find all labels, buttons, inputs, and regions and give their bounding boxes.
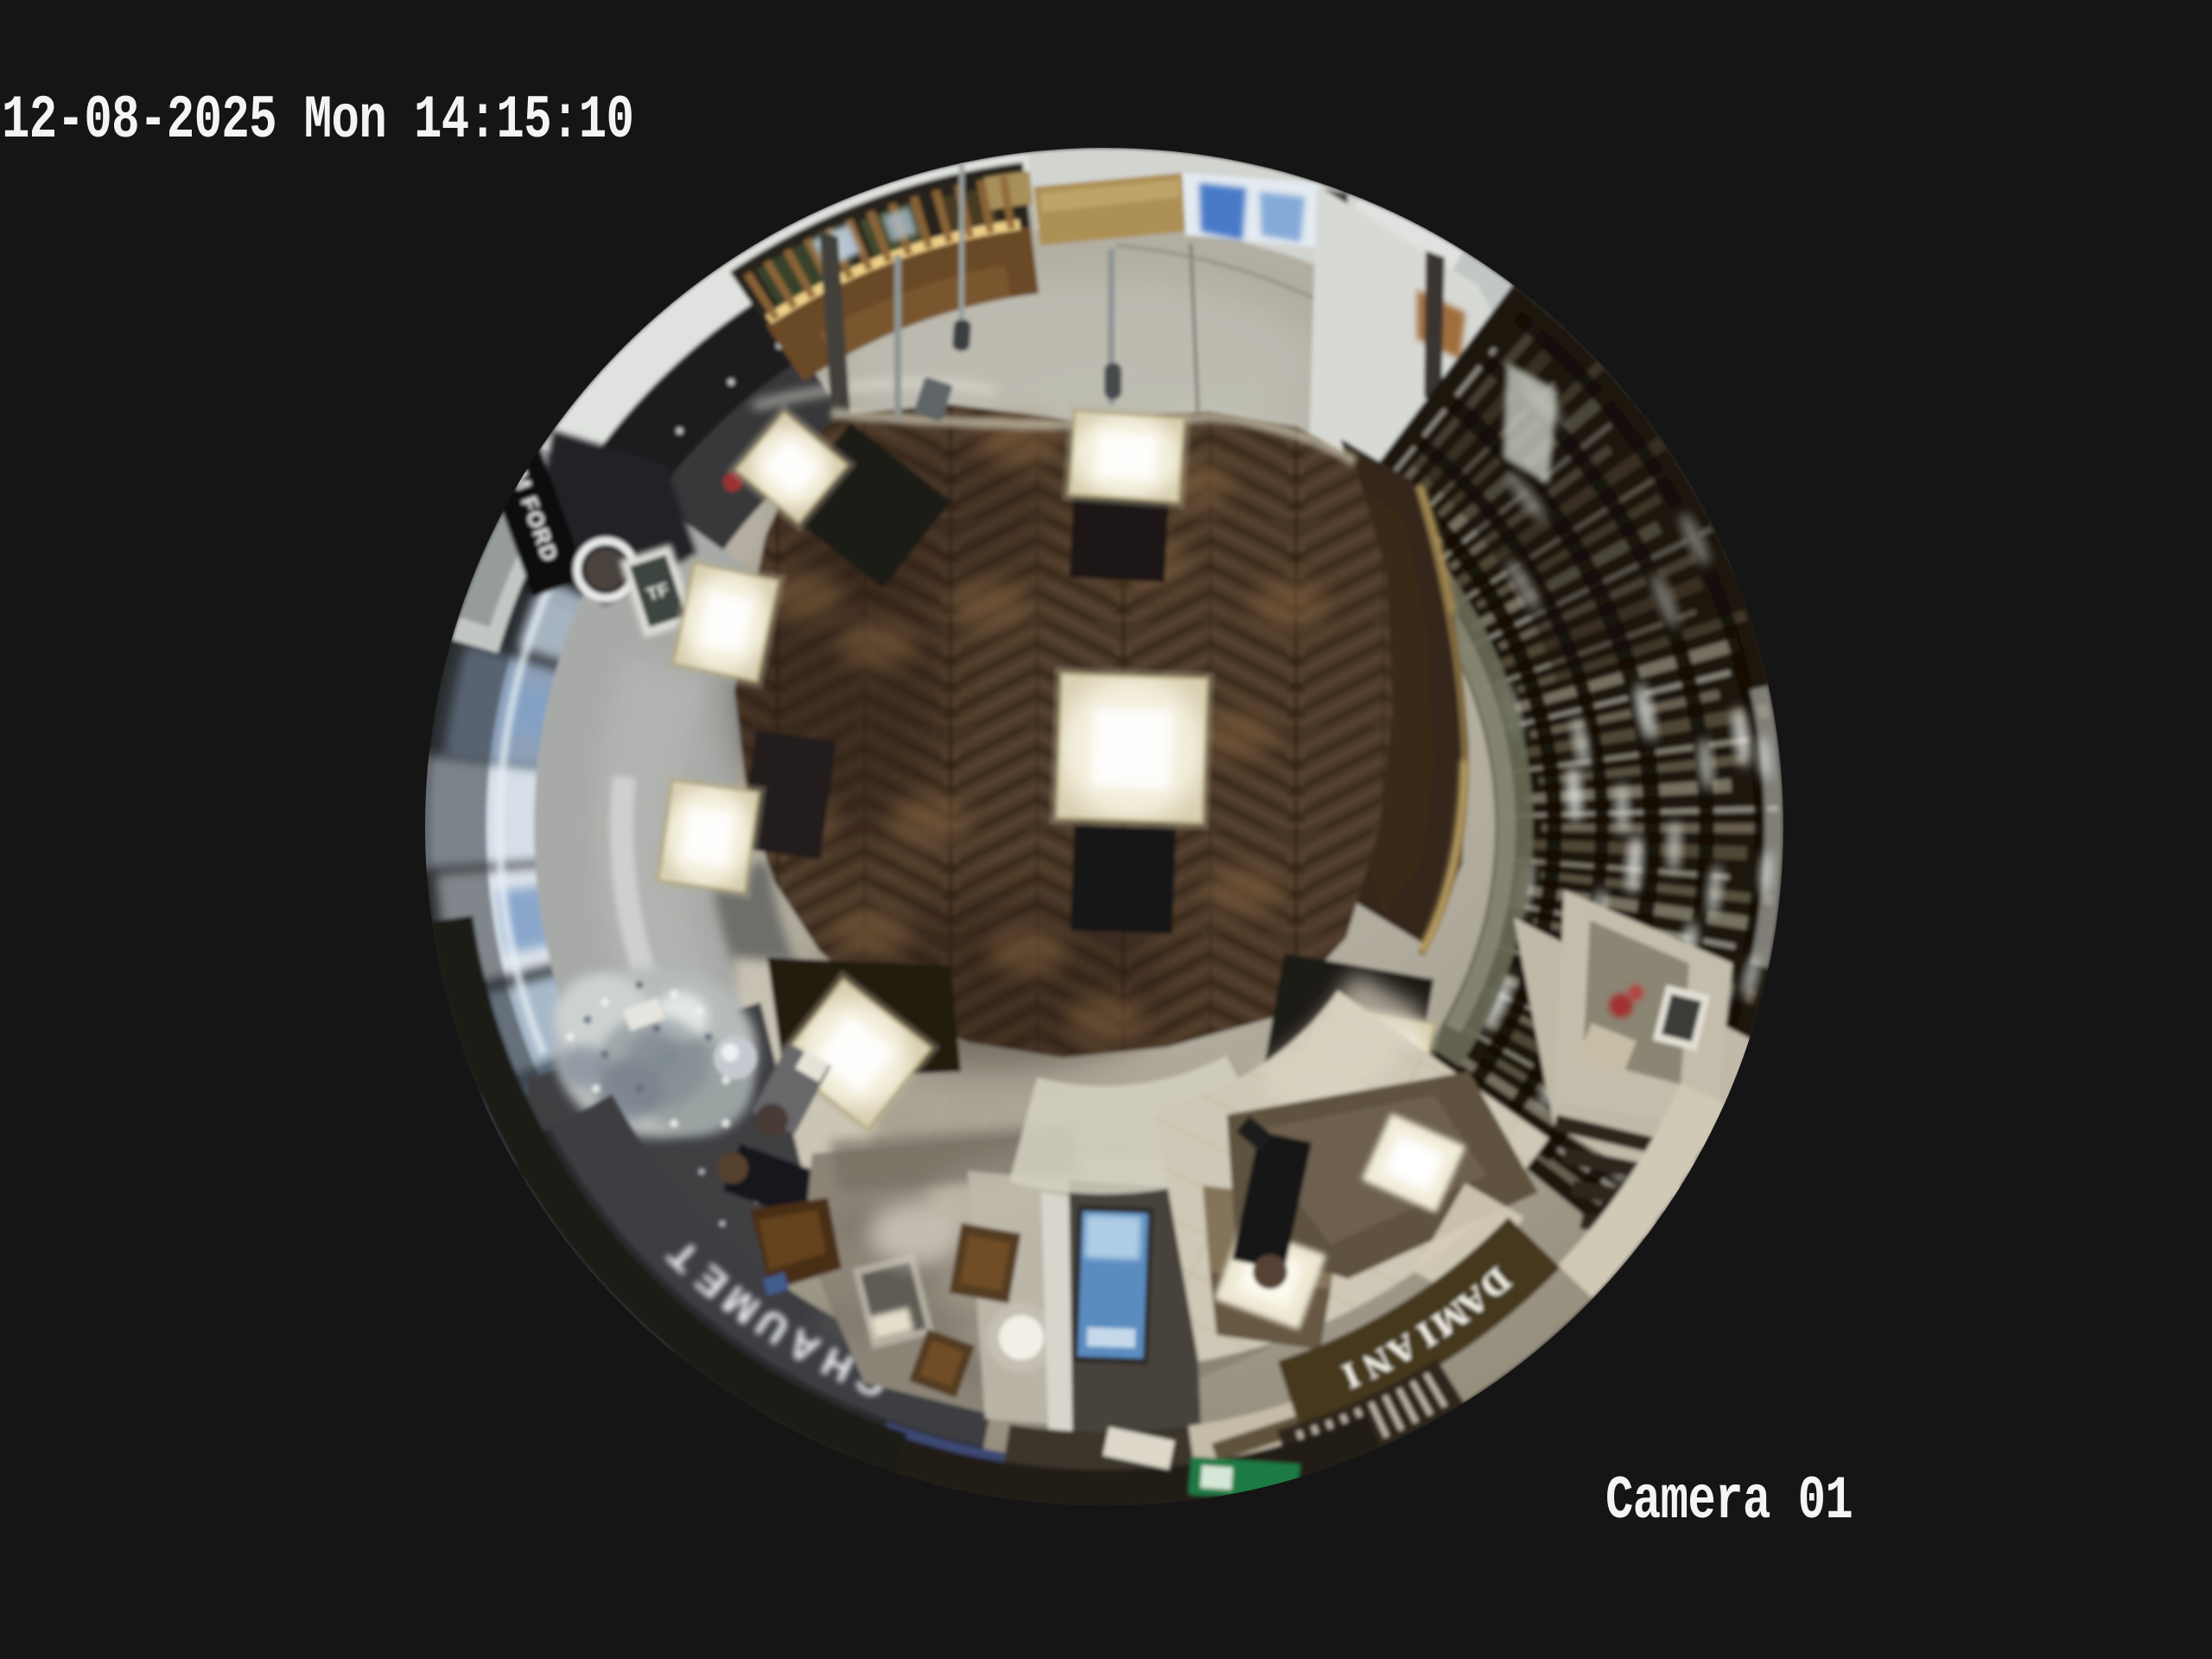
svg-text:Camera 01: Camera 01 xyxy=(1605,1467,1853,1536)
svg-text:12-08-2025 Mon 14:15:10: 12-08-2025 Mon 14:15:10 xyxy=(2,86,633,156)
